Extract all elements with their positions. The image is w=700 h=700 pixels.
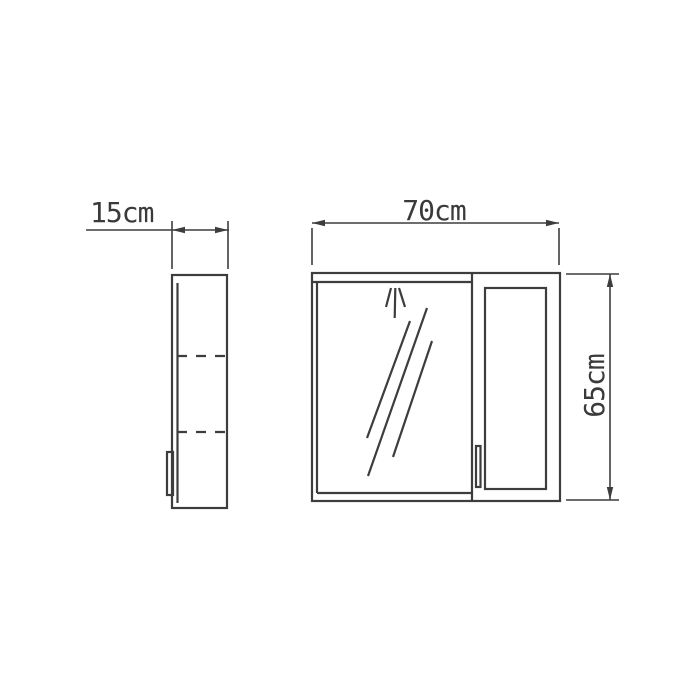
depth-dimension: 15cm <box>86 196 229 269</box>
height-label: 65cm <box>578 354 611 418</box>
drawing-page: 15cm 70cm <box>0 0 700 700</box>
height-arrowhead-top <box>607 274 613 287</box>
front-view <box>312 273 560 501</box>
door-panel <box>485 288 546 489</box>
width-arrowhead-left <box>312 220 325 226</box>
height-dimension: 65cm <box>566 274 619 500</box>
sparkle-ray-middle <box>395 288 396 318</box>
side-cabinet-outline <box>172 275 227 508</box>
width-arrowhead-right <box>546 220 559 226</box>
mirror-reflection-line-2 <box>368 308 427 476</box>
sparkle-ray-right <box>399 288 405 307</box>
mirror-reflection-line-3 <box>393 341 432 457</box>
depth-label: 15cm <box>90 196 154 229</box>
mirror-sparkle-mark <box>386 288 405 318</box>
front-cabinet-outline <box>312 273 560 501</box>
side-view <box>167 275 227 508</box>
width-dimension: 70cm <box>312 194 559 265</box>
sparkle-ray-left <box>386 288 391 307</box>
width-label: 70cm <box>402 194 466 227</box>
side-door-handle <box>167 452 173 495</box>
depth-arrowhead-left <box>172 227 185 233</box>
technical-drawing-canvas: 15cm 70cm <box>0 0 700 700</box>
height-arrowhead-bottom <box>607 487 613 500</box>
depth-arrowhead-right <box>215 227 228 233</box>
door-handle <box>476 446 481 487</box>
